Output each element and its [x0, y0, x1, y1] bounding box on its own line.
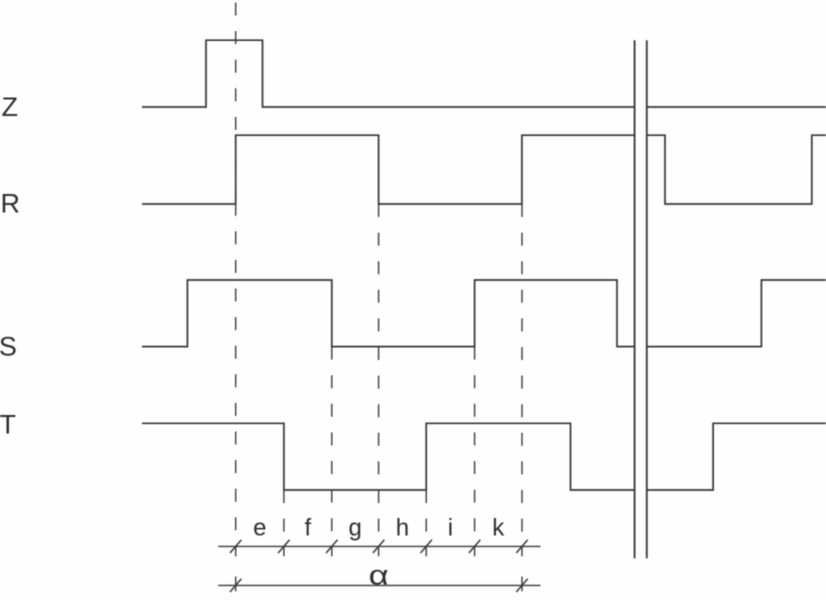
svg-text:Z: Z: [2, 92, 19, 122]
svg-text:g: g: [349, 515, 362, 542]
svg-text:S: S: [0, 332, 17, 362]
svg-text:e: e: [253, 515, 266, 542]
svg-text:h: h: [396, 515, 409, 542]
svg-text:R: R: [1, 189, 21, 219]
svg-text:k: k: [492, 515, 505, 542]
svg-text:T: T: [0, 410, 16, 440]
svg-text:i: i: [448, 515, 453, 542]
svg-text:f: f: [304, 515, 311, 542]
svg-text:α: α: [369, 559, 389, 591]
